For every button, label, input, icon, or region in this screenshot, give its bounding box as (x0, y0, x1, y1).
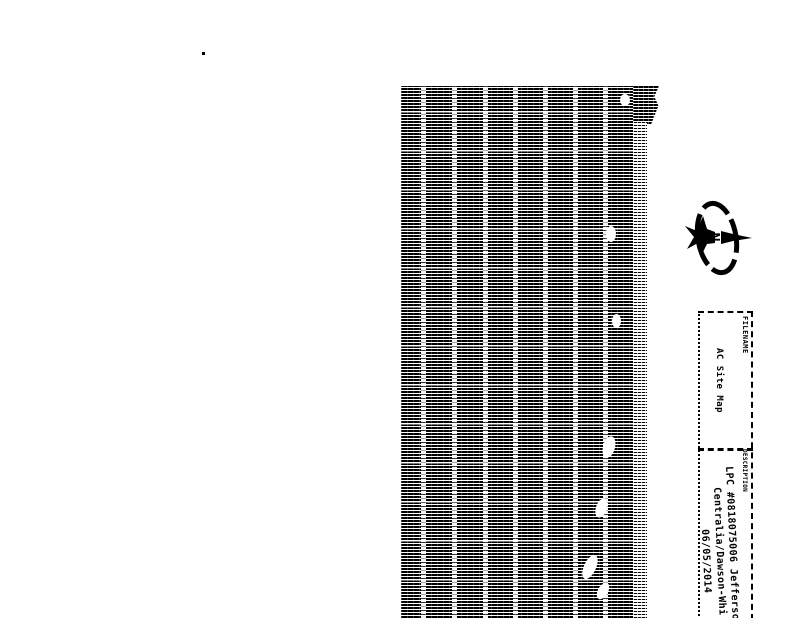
array-edge-noise (633, 122, 647, 618)
filename-value: AC Site Map (714, 348, 723, 413)
scan-white-blob (594, 581, 612, 602)
array-aisle (452, 86, 457, 618)
array-aisle (483, 86, 488, 618)
description-label: DESCRIPTION (741, 449, 747, 492)
scan-white-blob (606, 226, 616, 242)
array-edge-extension (633, 86, 659, 124)
north-arrow-compass-icon: N (681, 196, 755, 291)
pv-array-region (401, 86, 633, 618)
array-aisle (421, 86, 426, 618)
scanned-drawing-page: N FILENAME AC Site Map DESCRIPTION LPC #… (0, 0, 800, 618)
scan-white-blob (579, 553, 601, 582)
array-aisle (543, 86, 548, 618)
scan-white-blob (612, 314, 621, 328)
scan-white-blob (620, 94, 630, 106)
array-aisle (513, 86, 518, 618)
scan-speck-dot (202, 52, 205, 55)
description-line-3: 06/05/2014 (699, 529, 712, 594)
array-aisle (573, 86, 578, 618)
array-aisle (603, 86, 608, 618)
north-label: N (705, 232, 723, 241)
filename-label: FILENAME (741, 316, 748, 354)
